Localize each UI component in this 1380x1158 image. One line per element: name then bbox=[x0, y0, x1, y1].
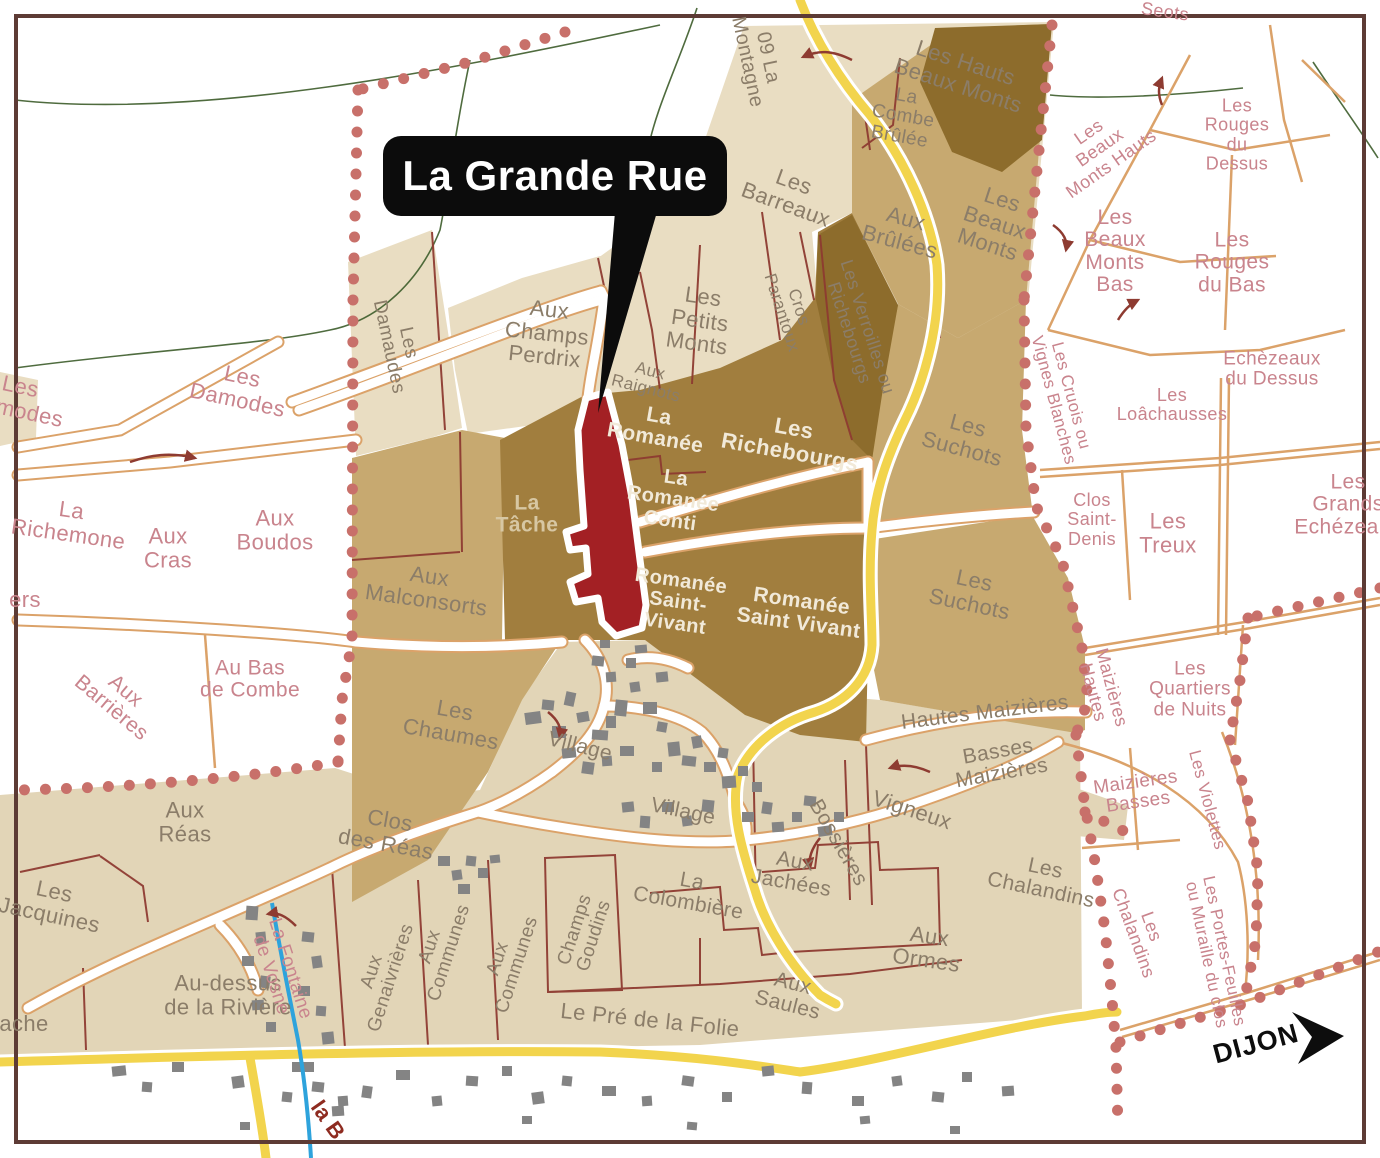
callout-la-grande-rue: La Grande Rue bbox=[383, 136, 727, 216]
map: 09 La MontagneLes Hauts Beaux MontsLa Co… bbox=[0, 0, 1380, 1158]
dijon-arrow-icon bbox=[1292, 1012, 1344, 1064]
callout-label: La Grande Rue bbox=[402, 152, 707, 200]
